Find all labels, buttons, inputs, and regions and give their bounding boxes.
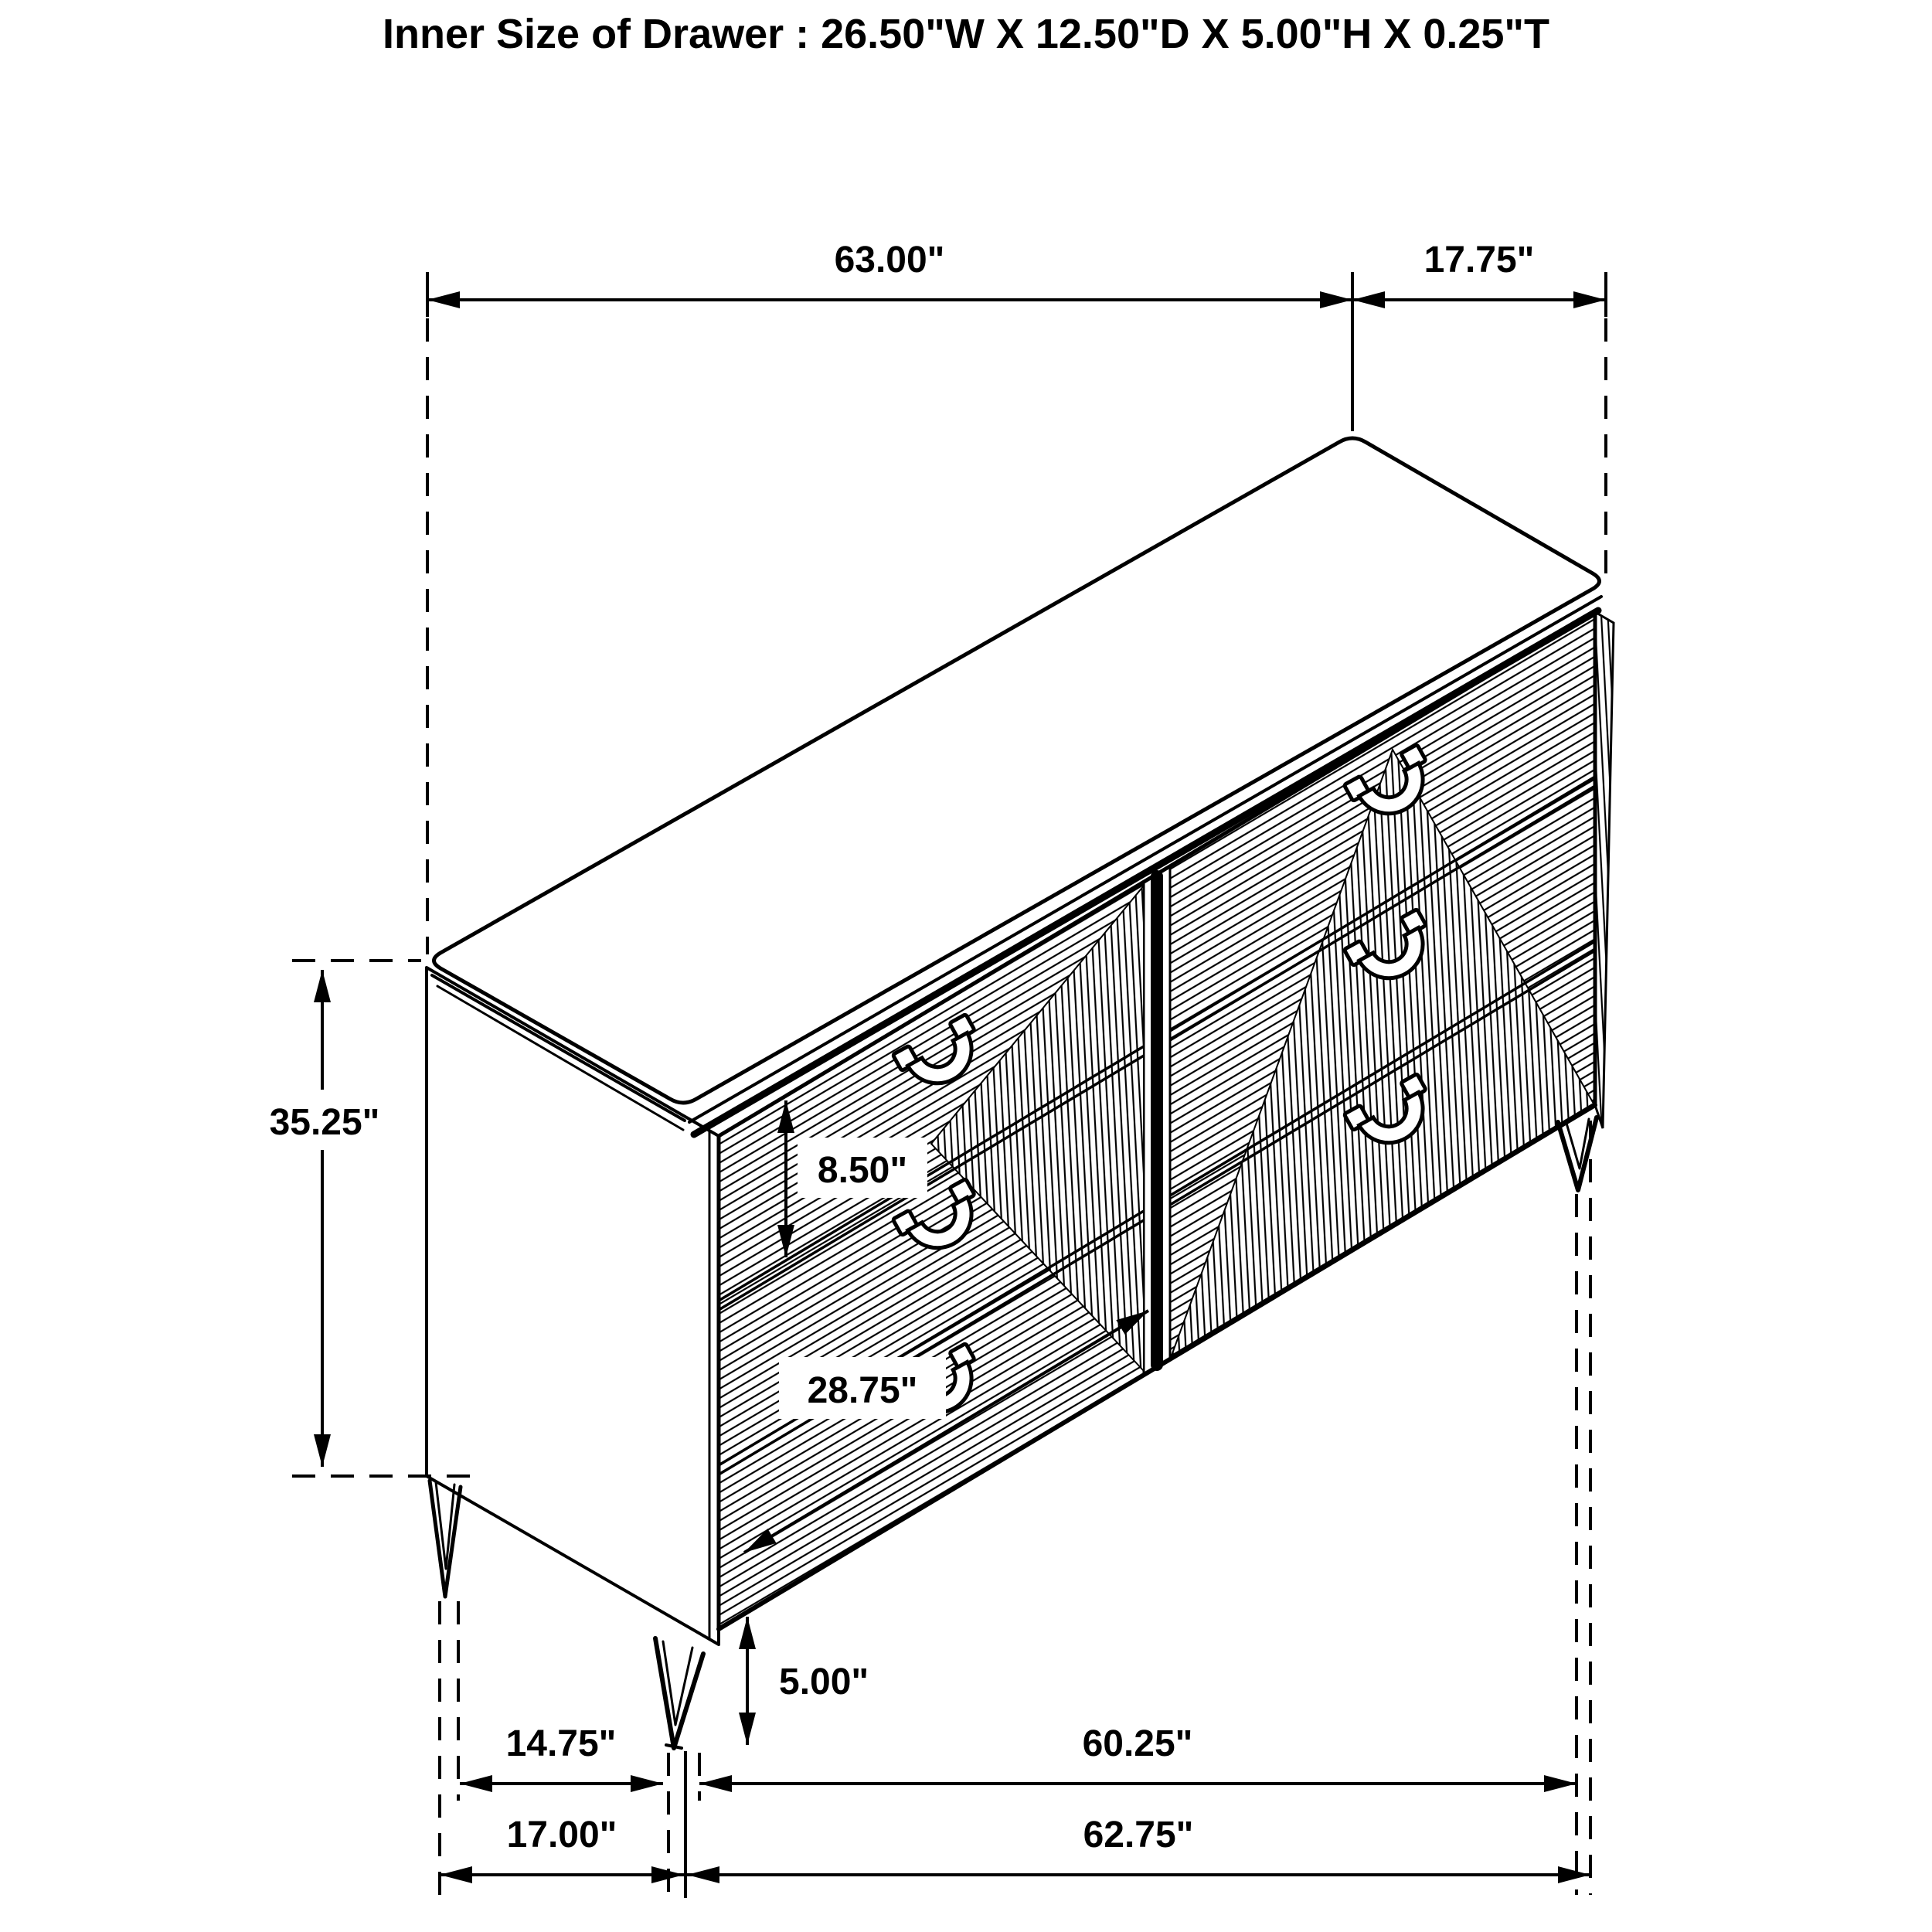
dim-leg-span-label: 60.25"	[1083, 1723, 1193, 1764]
dresser-drawing	[427, 438, 1614, 1748]
front-left-leg-foot	[666, 1745, 682, 1748]
top-edge-left-lip	[437, 986, 683, 1130]
dim-base-depth-label: 17.00"	[507, 1815, 617, 1855]
dresser-dimension-diagram: Inner Size of Drawer : 26.50"W X 12.50"D…	[0, 0, 1932, 1932]
dim-height-label: 35.25"	[270, 1102, 380, 1143]
right-end-panel	[1595, 612, 1614, 1128]
dim-drawer-width-label: 28.75"	[808, 1370, 918, 1411]
back-left-leg	[430, 1481, 461, 1597]
dim-top-width-label: 63.00"	[835, 240, 945, 281]
dimension-drawing-page: Inner Size of Drawer : 26.50"W X 12.50"D…	[0, 0, 1932, 1932]
side-panel-left	[427, 968, 719, 1645]
dim-base-width-label: 62.75"	[1083, 1815, 1194, 1855]
dim-drawer-height-label: 8.50"	[818, 1150, 907, 1191]
top-edge-left-lower	[432, 975, 685, 1121]
dim-top-depth-label: 17.75"	[1424, 240, 1535, 281]
front-left-leg	[655, 1638, 703, 1748]
dim-leg-height-label: 5.00"	[779, 1662, 869, 1702]
drawing-title: Inner Size of Drawer : 26.50"W X 12.50"D…	[383, 11, 1549, 57]
dim-leg-setback-label: 14.75"	[506, 1723, 617, 1764]
